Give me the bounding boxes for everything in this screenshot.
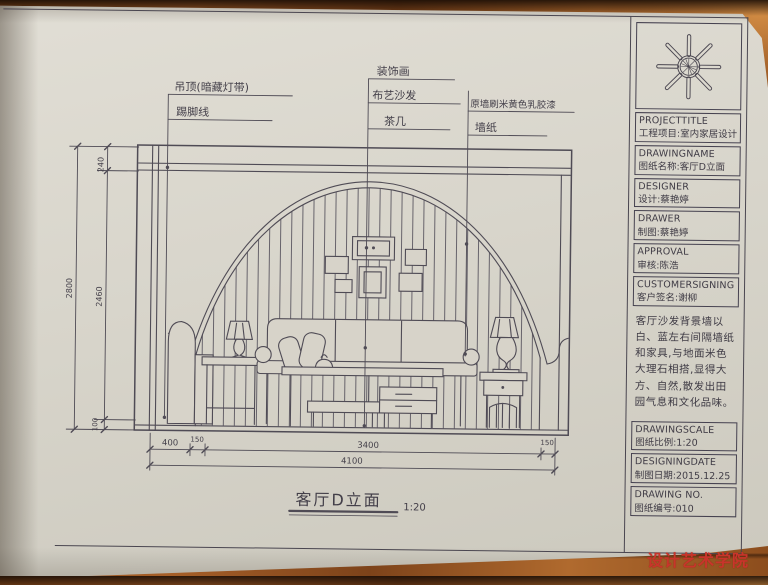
dim-v-100: 100 [91, 418, 99, 431]
row-label-en: PROJECTTITLE [639, 115, 737, 128]
titleblock-row-number: DRAWING NO. 图纸编号:010 [630, 486, 736, 517]
drawing-title: 客厅D立面 [295, 490, 382, 510]
callout-wall-paint: 原墙刷米黄色乳胶漆 [470, 98, 556, 111]
dim-h-150-right: 150 [540, 439, 553, 447]
dim-h-400: 400 [162, 438, 178, 448]
sheet-content: 吊顶(暗藏灯带) 踢脚线 装饰画 布艺沙发 茶几 原墙刷米黄色乳胶漆 墙纸 40… [0, 0, 768, 581]
dim-v-240: 240 [96, 157, 105, 172]
callout-wallpaper: 墙纸 [475, 120, 497, 134]
row-value-zh: 制图日期:2015.12.25 [635, 470, 733, 483]
titleblock-row-scale: DRAWINGSCALE 图纸比例:1:20 [631, 421, 737, 452]
row-value-zh: 图纸名称:客厅D立面 [638, 161, 736, 174]
dimension-lines-horizontal [147, 433, 558, 475]
logo-box [635, 22, 742, 110]
dim-v-total: 2800 [65, 278, 74, 298]
title-block: PROJECTTITLE 工程项目:室内家居设计 DRAWINGNAME 图纸名… [624, 16, 748, 554]
row-label-en: DRAWER [638, 213, 736, 226]
row-label-en: DRAWINGSCALE [635, 424, 733, 437]
callout-ceiling: 吊顶(暗藏灯带) [174, 79, 249, 94]
compass-logo-icon [650, 28, 727, 105]
row-value-zh: 图纸编号:010 [634, 503, 732, 516]
row-label-en: CUSTOMERSIGNING [637, 279, 735, 292]
academy-watermark: 设计艺术学院 [647, 547, 768, 571]
titleblock-row-designer: DESIGNER 设计:蔡艳婷 [634, 178, 740, 209]
row-value-zh: 工程项目:室内家居设计 [639, 128, 737, 141]
drawing-linework [65, 75, 574, 518]
titleblock-row-approval: APPROVAL 审核:陈浩 [633, 243, 739, 274]
row-label-en: DESIGNER [638, 181, 736, 194]
row-value-zh: 客户签名:谢柳 [637, 292, 735, 305]
titleblock-row-drawer: DRAWER 制图:蔡艳婷 [634, 210, 740, 241]
callout-skirting: 踢脚线 [176, 104, 209, 118]
dim-v-2460: 2460 [95, 286, 104, 306]
dim-h-total: 4100 [341, 456, 363, 466]
row-label-en: DRAWINGNAME [639, 148, 737, 161]
titleblock-row-customer: CUSTOMERSIGNING 客户签名:谢柳 [633, 276, 739, 307]
row-value-zh: 审核:陈浩 [637, 260, 735, 273]
title-underline [289, 511, 397, 512]
callout-sofa: 布艺沙发 [372, 88, 416, 103]
compass-inner-lines [681, 59, 697, 75]
row-value-zh: 设计:蔡艳婷 [638, 194, 736, 207]
drawing-scale-note: 1:20 [403, 502, 426, 513]
photo-of-drawing-sheet: { "sheet": { "callouts": { "ceiling": "吊… [0, 0, 768, 576]
design-note: 客厅沙发背景墙以白、蓝左右间隔墙纸和家具,与地面米色大理石相搭,显得大方、自然,… [631, 309, 738, 422]
row-value-zh: 制图:蔡艳婷 [638, 227, 736, 240]
row-label-en: DRAWING NO. [634, 489, 732, 502]
dim-h-150-left: 150 [190, 436, 203, 444]
callout-picture: 装饰画 [377, 64, 410, 78]
titleblock-row-project: PROJECTTITLE 工程项目:室内家居设计 [635, 112, 741, 143]
dim-h-3400: 3400 [357, 441, 379, 451]
titleblock-row-date: DESIGNINGDATE 制图日期:2015.12.25 [631, 453, 737, 484]
titleblock-row-drawingname: DRAWINGNAME 图纸名称:客厅D立面 [634, 145, 740, 176]
callout-tea-table: 茶几 [384, 115, 406, 128]
elevation-drawing: 吊顶(暗藏灯带) 踢脚线 装饰画 布艺沙发 茶几 原墙刷米黄色乳胶漆 墙纸 40… [0, 0, 624, 579]
row-value-zh: 图纸比例:1:20 [635, 437, 733, 450]
row-label-en: APPROVAL [637, 246, 735, 259]
row-label-en: DESIGNINGDATE [635, 457, 733, 470]
